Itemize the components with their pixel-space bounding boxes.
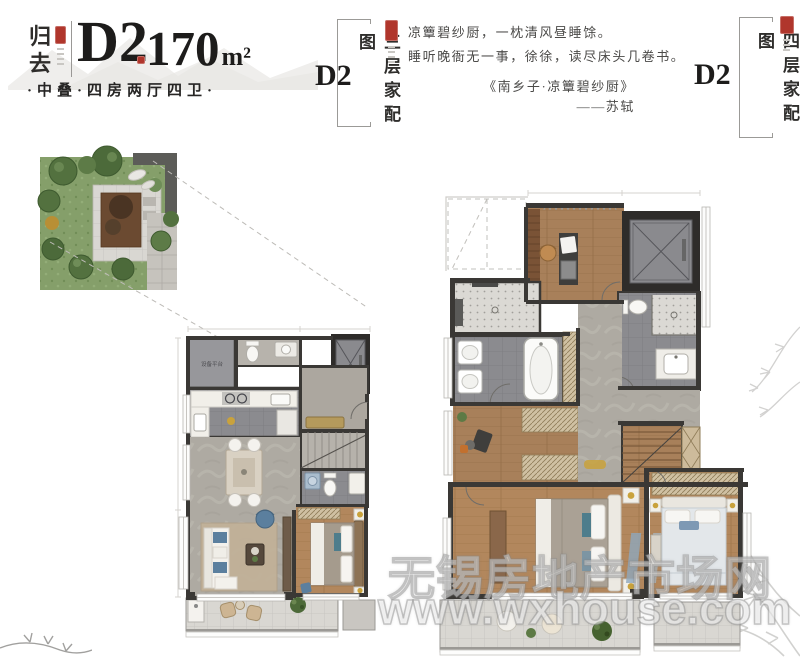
unit-subtitle: ·中叠·四房两厅四卫· [14,79,230,100]
garden-terrace [38,146,179,290]
bowl-icon [227,417,235,425]
stool-icon [300,582,312,594]
tv-console-icon [283,517,291,591]
cushion-icon [460,445,468,453]
room-bath3 [301,470,368,507]
poem-seal-stamp-icon [385,20,398,41]
laundry-sink-icon [188,600,204,622]
stairs-icon [301,432,368,470]
room-toilet-nook [235,338,301,366]
series-seal-stamp-icon [55,26,66,44]
room-dining [188,437,301,510]
dining-table-icon [226,450,262,495]
wardrobe-icon [522,455,578,480]
floor4-unit-label: D2 [694,60,731,90]
flower-shrub-icon [45,216,59,230]
poem-block: 凉簟碧纱厨，一枕清风昼睡馀。 睡听晚衙无一事，徐徐，读尽床头几卷书。 《南乡子·… [383,16,651,116]
poem-source: 《南乡子·凉簟碧纱厨》 [483,76,635,95]
balcony3 [186,597,338,637]
gold-mat-icon [584,460,606,469]
elevator-icon [622,211,700,292]
unit-area: 170 m² [146,24,251,73]
bathtub-icon [524,338,558,400]
bed-icon [311,521,363,587]
poem-seal-caption-marks [388,46,395,63]
room-living [188,510,292,598]
stove-icon [222,392,250,405]
poem-line-1: 凉簟碧纱厨，一枕清风昼睡馀。 [408,22,612,41]
room-dressing [453,406,580,482]
room-kitchen [188,388,300,437]
floor4-caption: 四层家配图 [752,32,800,140]
void-area [446,197,528,271]
entry-bench-icon [306,417,344,428]
header-divider [71,21,72,77]
sink-icon [275,342,297,357]
poem-line-2: 睡听晚衙无一事，徐徐，读尽床头几卷书。 [408,46,685,65]
coffee-table-icon [246,544,264,565]
shower-bench-icon [455,299,463,326]
floor4-seal-caption-marks [783,39,790,51]
wardrobe-icon [563,332,578,404]
series-seal-caption-marks [57,48,64,65]
kitchen-sink-icon [271,394,290,405]
desk-icon [559,233,578,285]
wardrobe-icon [298,508,340,519]
service-platform [343,600,375,630]
shower-icon [652,295,696,335]
room-master-bath [453,336,563,404]
area-number: 170 [146,24,220,73]
room-bedroom3 [296,507,368,595]
equipment-room-label: 设备平台 [201,360,224,368]
mini-seal-stamp-icon [137,56,145,64]
floor3-unit-label: D2 [315,61,352,91]
shower-head-icon [472,283,498,287]
sink-icon [194,414,206,431]
poem-author: ——苏轼 [577,96,635,115]
toilet-icon [324,473,336,496]
armchair-icon [256,510,274,528]
watermark-site-url: www.wxhouse.com [378,583,782,635]
toilet-icon [623,300,647,314]
vanity-sink-icon [656,349,696,379]
room-guest-bath [618,292,700,390]
floor3-plan: 设备平台 [25,145,380,645]
vanity-sink-icon [349,473,365,494]
fridge-icon [277,410,297,435]
room-entry-hall [301,366,368,432]
desk-chair-icon [540,245,556,261]
washer-icon [305,473,320,489]
plant-icon [457,412,467,422]
room-equipment-platform: 设备平台 [188,338,235,388]
series-name-vertical: 归去 [29,23,53,77]
area-unit: m² [222,42,251,72]
toilet-icon [246,341,259,362]
wardrobe-icon [522,408,578,432]
floorplan-page: { "header": { "series_vertical": "归去", "… [0,0,800,657]
floor4-seal-stamp-icon [780,16,794,34]
dimension-lines [528,190,700,196]
floor4-caption-block: 四层家配图 D2 [692,12,800,144]
